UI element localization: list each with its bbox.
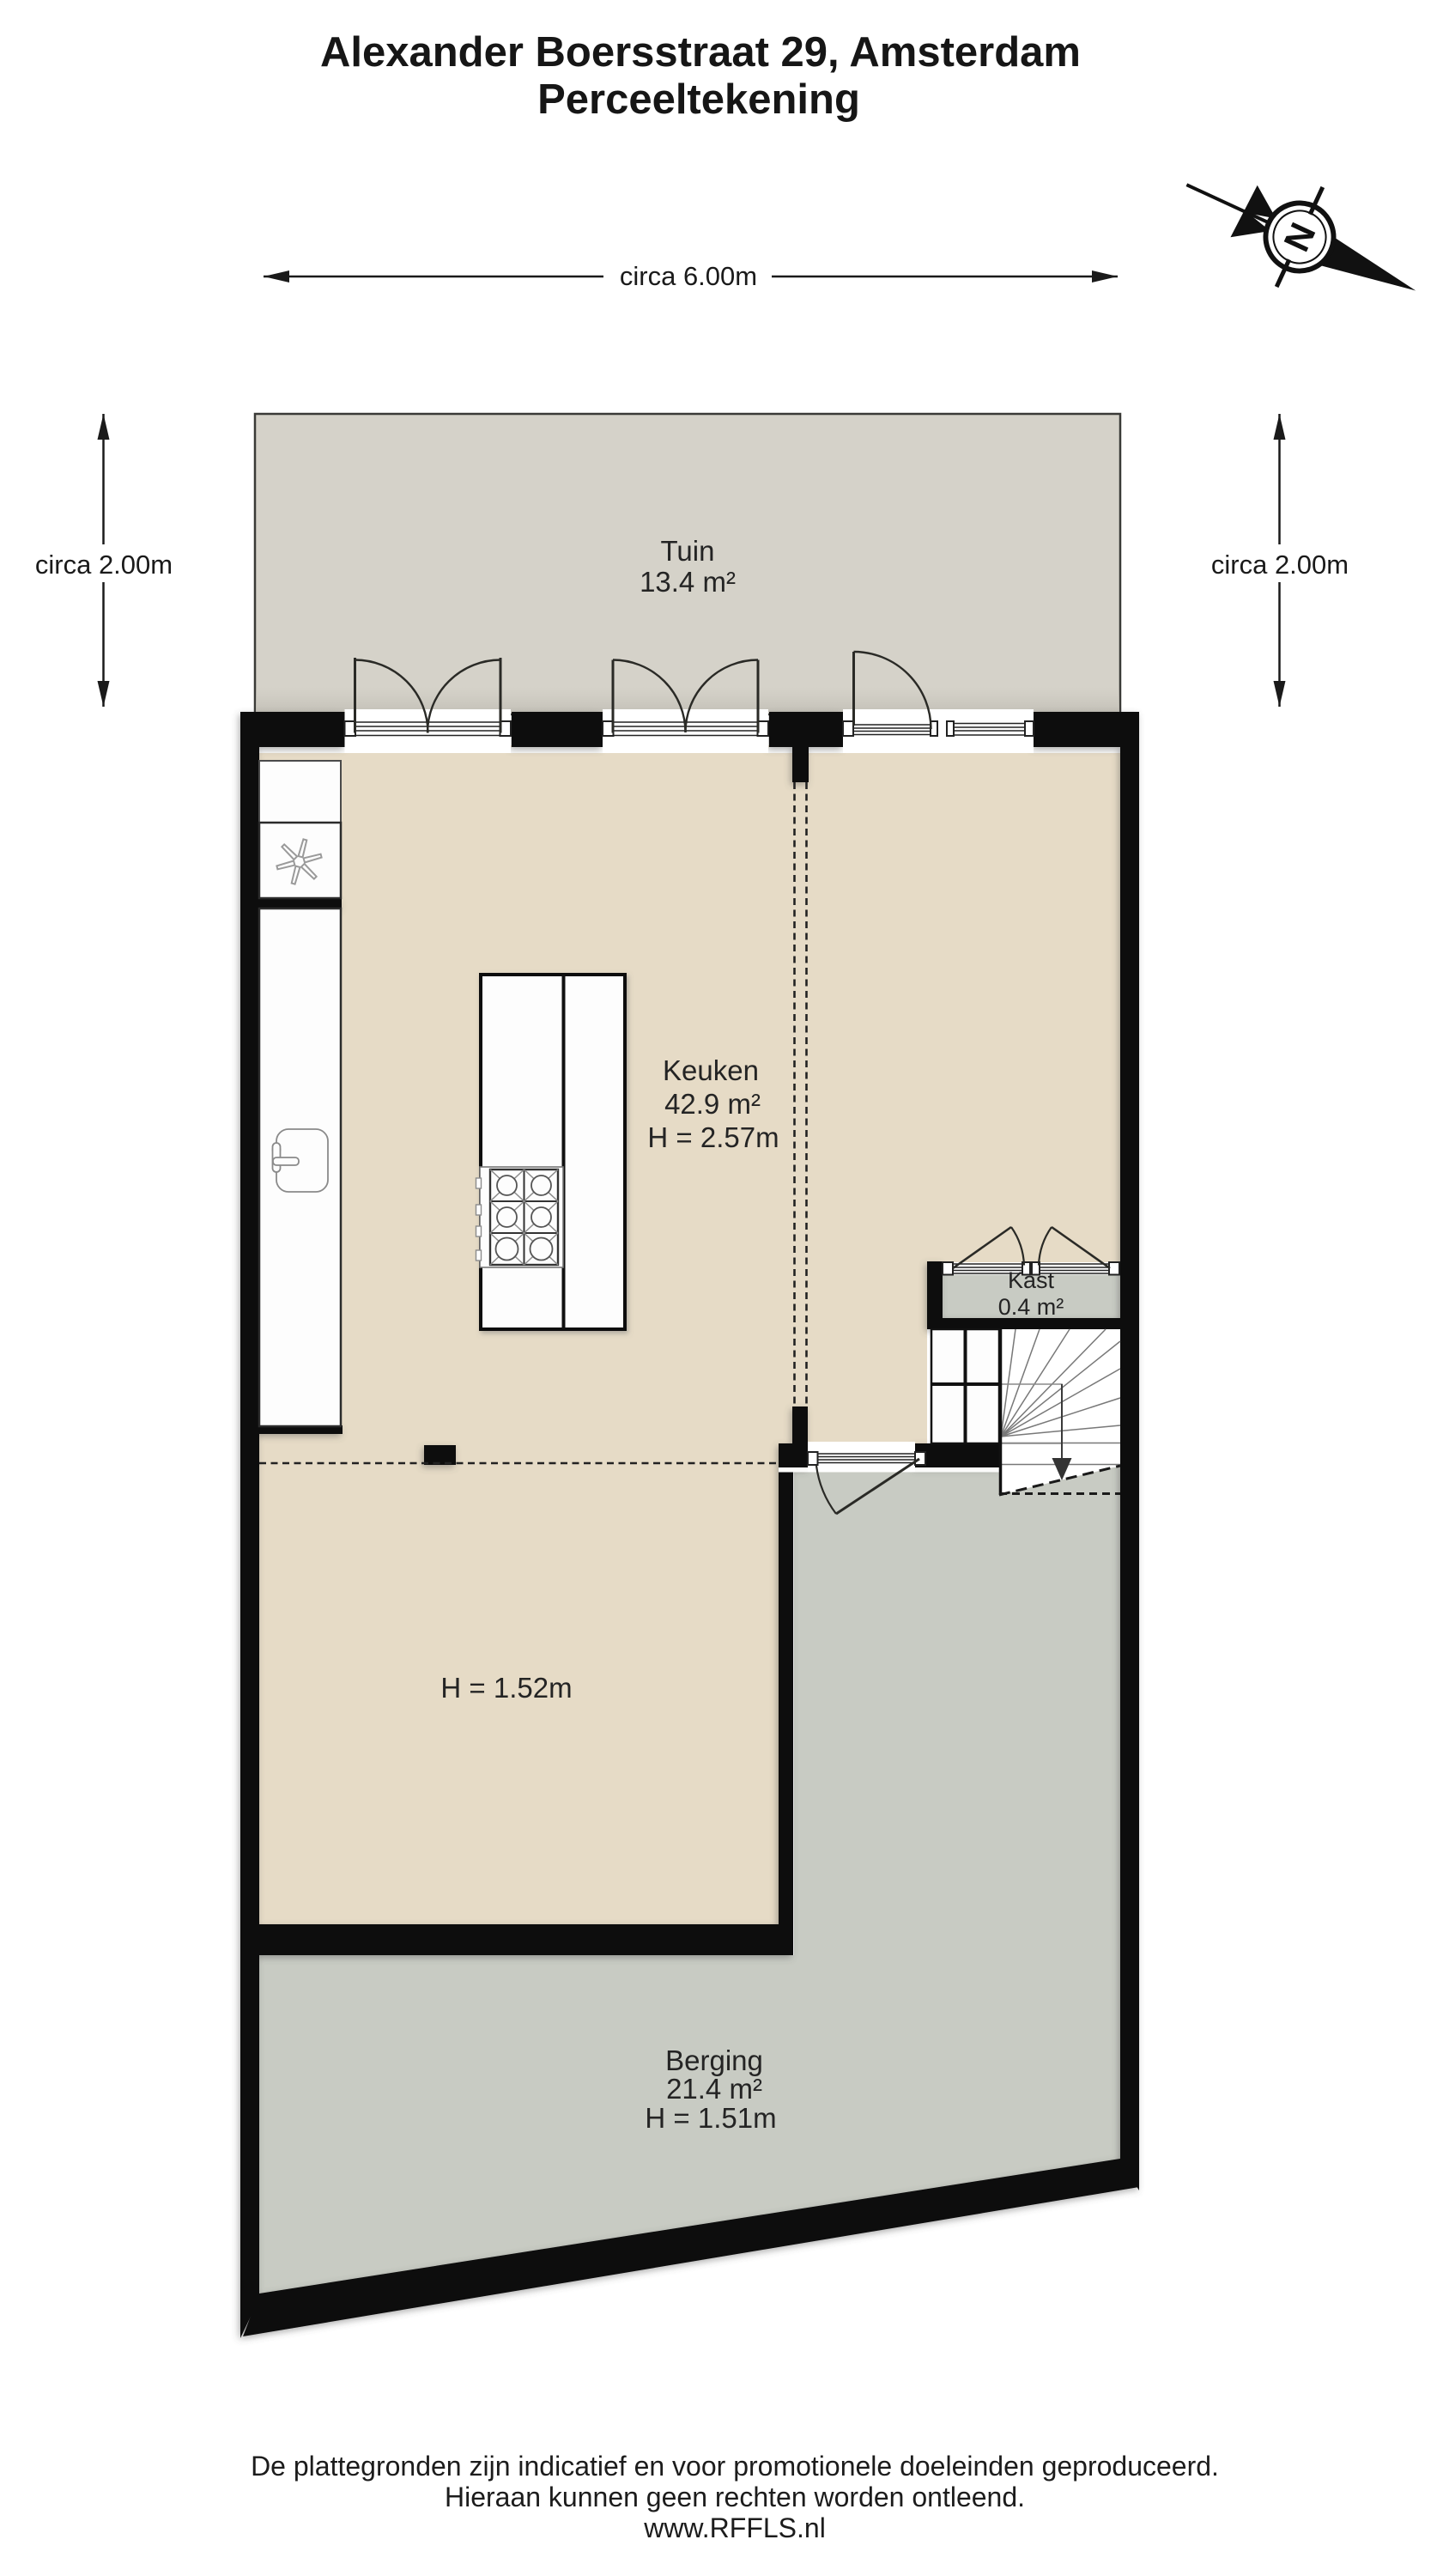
svg-text:De plattegronden zijn indicati: De plattegronden zijn indicatief en voor… <box>251 2451 1219 2482</box>
svg-text:Hieraan kunnen geen rechten wo: Hieraan kunnen geen rechten worden ontle… <box>445 2482 1025 2512</box>
svg-text:circa 2.00m: circa 2.00m <box>1211 550 1349 580</box>
svg-text:Alexander Boersstraat 29, Amst: Alexander Boersstraat 29, Amsterdam <box>320 29 1081 76</box>
svg-text:Kast: Kast <box>1008 1267 1055 1293</box>
svg-text:42.9 m²: 42.9 m² <box>664 1088 761 1120</box>
svg-text:Tuin: Tuin <box>661 535 715 567</box>
svg-text:H = 1.51m: H = 1.51m <box>645 2102 776 2134</box>
svg-text:13.4 m²: 13.4 m² <box>640 566 736 598</box>
svg-text:Perceeltekening: Perceeltekening <box>537 76 860 123</box>
svg-text:circa 6.00m: circa 6.00m <box>620 261 757 291</box>
svg-text:Keuken: Keuken <box>663 1054 759 1086</box>
svg-text:www.RFFLS.nl: www.RFFLS.nl <box>643 2512 826 2543</box>
svg-text:H = 1.52m: H = 1.52m <box>440 1672 572 1704</box>
svg-text:H = 2.57m: H = 2.57m <box>647 1121 779 1153</box>
svg-text:0.4 m²: 0.4 m² <box>998 1294 1064 1320</box>
svg-text:21.4 m²: 21.4 m² <box>666 2073 762 2105</box>
svg-text:circa 2.00m: circa 2.00m <box>35 550 173 580</box>
svg-text:Berging: Berging <box>665 2044 763 2076</box>
